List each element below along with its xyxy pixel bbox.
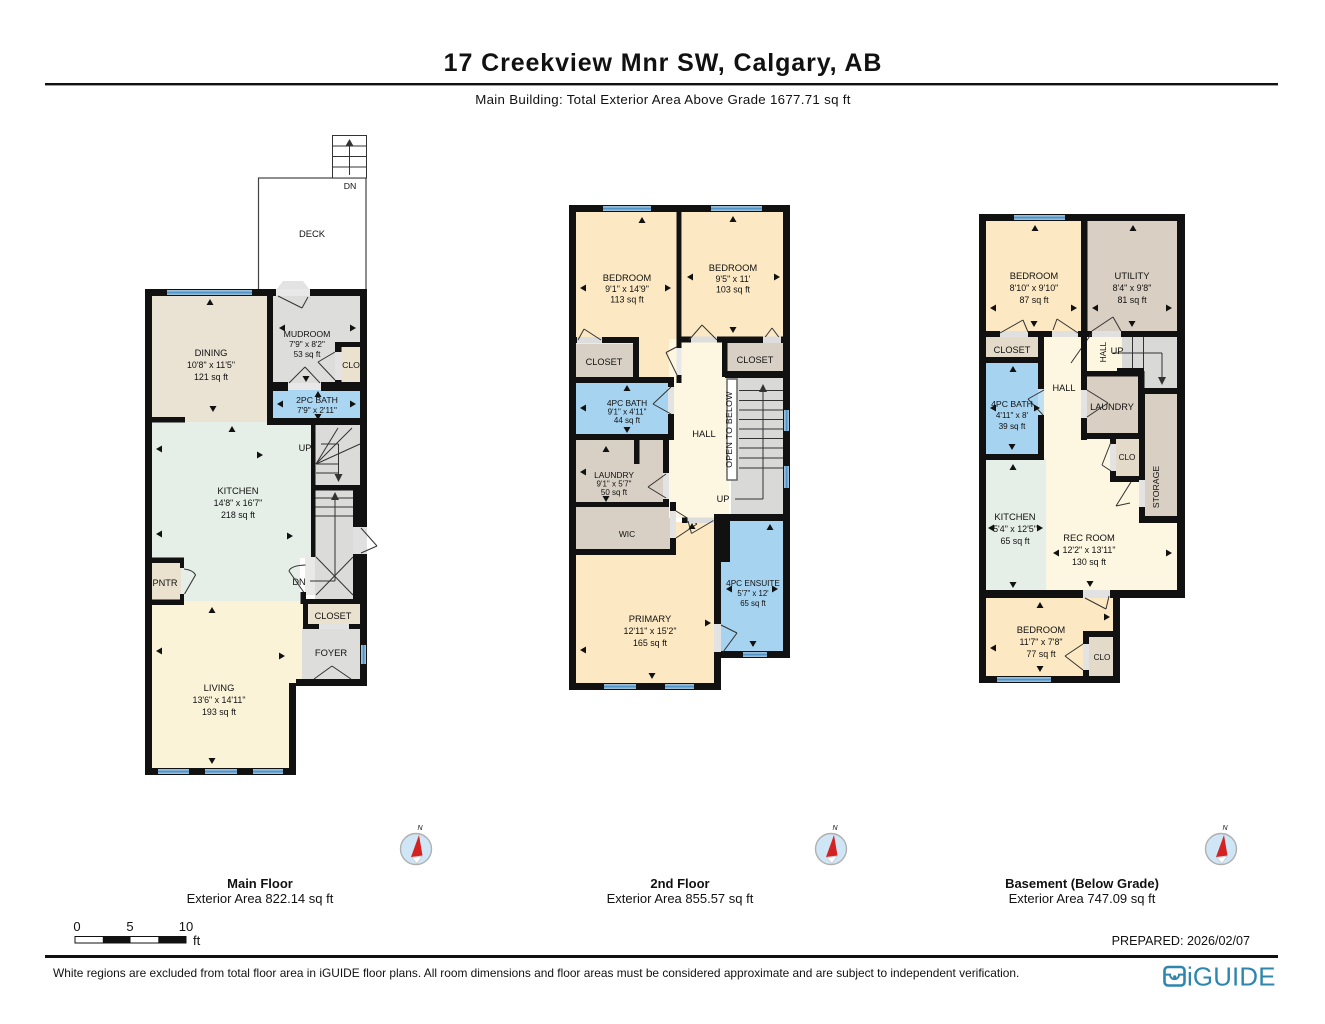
svg-text:HALL: HALL [1053, 383, 1076, 393]
svg-text:Exterior Area 855.57 sq ft: Exterior Area 855.57 sq ft [607, 891, 754, 906]
svg-text:113 sq ft: 113 sq ft [610, 295, 644, 305]
svg-text:PRIMARY: PRIMARY [629, 613, 672, 624]
svg-text:5: 5 [126, 919, 133, 934]
svg-text:13'6" x 14'11": 13'6" x 14'11" [193, 695, 246, 705]
svg-text:4PC BATH: 4PC BATH [991, 399, 1033, 409]
svg-text:KITCHEN: KITCHEN [217, 485, 258, 496]
svg-text:77 sq ft: 77 sq ft [1026, 649, 1056, 659]
svg-text:8'4" x 9'8": 8'4" x 9'8" [1113, 283, 1152, 293]
svg-text:5'4" x 12'5": 5'4" x 12'5" [993, 524, 1037, 534]
svg-text:65 sq ft: 65 sq ft [1000, 536, 1030, 546]
svg-text:DN: DN [344, 181, 357, 191]
svg-text:7'9" x 8'2": 7'9" x 8'2" [289, 340, 325, 349]
svg-text:LAUNDRY: LAUNDRY [594, 470, 634, 480]
svg-text:CLO: CLO [342, 360, 360, 370]
svg-text:Exterior Area 747.09 sq ft: Exterior Area 747.09 sq ft [1009, 891, 1156, 906]
svg-text:CLOSET: CLOSET [586, 357, 623, 367]
svg-text:LIVING: LIVING [204, 682, 235, 693]
svg-text:87 sq ft: 87 sq ft [1019, 295, 1049, 305]
svg-text:iGUIDE: iGUIDE [1187, 964, 1276, 992]
svg-text:KITCHEN: KITCHEN [994, 511, 1035, 522]
svg-text:9'1" x 14'9": 9'1" x 14'9" [605, 284, 649, 294]
svg-text:PNTR: PNTR [152, 578, 177, 588]
svg-text:BEDROOM: BEDROOM [1017, 624, 1066, 635]
svg-text:165 sq ft: 165 sq ft [633, 638, 668, 648]
svg-text:2nd Floor: 2nd Floor [650, 876, 709, 891]
svg-text:39 sq ft: 39 sq ft [999, 422, 1027, 431]
svg-text:Basement (Below Grade): Basement (Below Grade) [1005, 876, 1159, 891]
svg-text:HALL: HALL [692, 428, 715, 439]
svg-text:8'10" x 9'10": 8'10" x 9'10" [1010, 283, 1059, 293]
svg-text:11'7" x 7'8": 11'7" x 7'8" [1019, 637, 1062, 647]
svg-text:Exterior Area 822.14 sq ft: Exterior Area 822.14 sq ft [187, 891, 334, 906]
svg-text:121 sq ft: 121 sq ft [194, 372, 229, 382]
svg-text:10'8" x 11'5": 10'8" x 11'5" [187, 360, 235, 370]
svg-text:17 Creekview Mnr SW, Calgary,: 17 Creekview Mnr SW, Calgary, AB [444, 49, 883, 77]
svg-text:STORAGE: STORAGE [1151, 466, 1161, 509]
svg-text:MUDROOM: MUDROOM [284, 329, 331, 339]
svg-text:0: 0 [73, 919, 80, 934]
svg-text:REC ROOM: REC ROOM [1063, 532, 1115, 543]
svg-text:ft: ft [193, 933, 201, 948]
svg-text:LAUNDRY: LAUNDRY [1090, 402, 1134, 412]
svg-text:White regions are excluded fro: White regions are excluded from total fl… [53, 966, 1019, 980]
svg-text:CLO: CLO [1094, 653, 1111, 662]
svg-text:4PC BATH: 4PC BATH [607, 398, 647, 408]
svg-text:DINING: DINING [195, 347, 228, 358]
svg-text:CLOSET: CLOSET [737, 355, 774, 365]
svg-text:Main Building: Total Exterior: Main Building: Total Exterior Area Above… [475, 92, 851, 107]
svg-text:65 sq ft: 65 sq ft [740, 599, 766, 608]
svg-text:10: 10 [179, 919, 193, 934]
svg-text:81 sq ft: 81 sq ft [1117, 295, 1147, 305]
svg-text:5'7" x 12': 5'7" x 12' [737, 589, 769, 598]
svg-text:CLO: CLO [1119, 453, 1136, 462]
svg-text:UP: UP [299, 443, 312, 453]
svg-text:UP: UP [1111, 346, 1124, 356]
svg-text:BEDROOM: BEDROOM [709, 262, 758, 273]
svg-text:53 sq ft: 53 sq ft [294, 350, 322, 359]
svg-text:44 sq ft: 44 sq ft [614, 416, 641, 425]
svg-text:4'11" x 8': 4'11" x 8' [996, 411, 1029, 420]
svg-text:103 sq ft: 103 sq ft [716, 285, 751, 295]
svg-text:DECK: DECK [299, 228, 326, 239]
svg-text:UTILITY: UTILITY [1115, 270, 1151, 281]
svg-text:CLOSET: CLOSET [315, 611, 352, 621]
svg-text:HALL: HALL [1099, 341, 1108, 362]
svg-text:12'11" x 15'2": 12'11" x 15'2" [624, 626, 677, 636]
svg-text:193 sq ft: 193 sq ft [202, 707, 237, 717]
svg-text:BEDROOM: BEDROOM [1010, 270, 1059, 281]
svg-text:9'5" x 11': 9'5" x 11' [716, 274, 751, 284]
svg-text:WIC: WIC [619, 529, 635, 539]
svg-text:7'9" x 2'11": 7'9" x 2'11" [297, 406, 337, 415]
svg-text:12'2" x 13'11": 12'2" x 13'11" [1063, 545, 1116, 555]
svg-text:PREPARED: 2026/02/07: PREPARED: 2026/02/07 [1112, 934, 1250, 948]
svg-text:FOYER: FOYER [315, 647, 348, 658]
svg-text:Main Floor: Main Floor [227, 876, 293, 891]
svg-text:14'8" x 16'7": 14'8" x 16'7" [214, 498, 263, 508]
svg-text:218 sq ft: 218 sq ft [221, 510, 256, 520]
svg-text:UP: UP [717, 494, 730, 504]
svg-text:BEDROOM: BEDROOM [603, 272, 652, 283]
svg-text:50 sq ft: 50 sq ft [601, 488, 628, 497]
svg-text:OPEN TO BELOW: OPEN TO BELOW [724, 391, 734, 468]
svg-text:130 sq ft: 130 sq ft [1072, 557, 1107, 567]
svg-text:CLOSET: CLOSET [994, 345, 1031, 355]
